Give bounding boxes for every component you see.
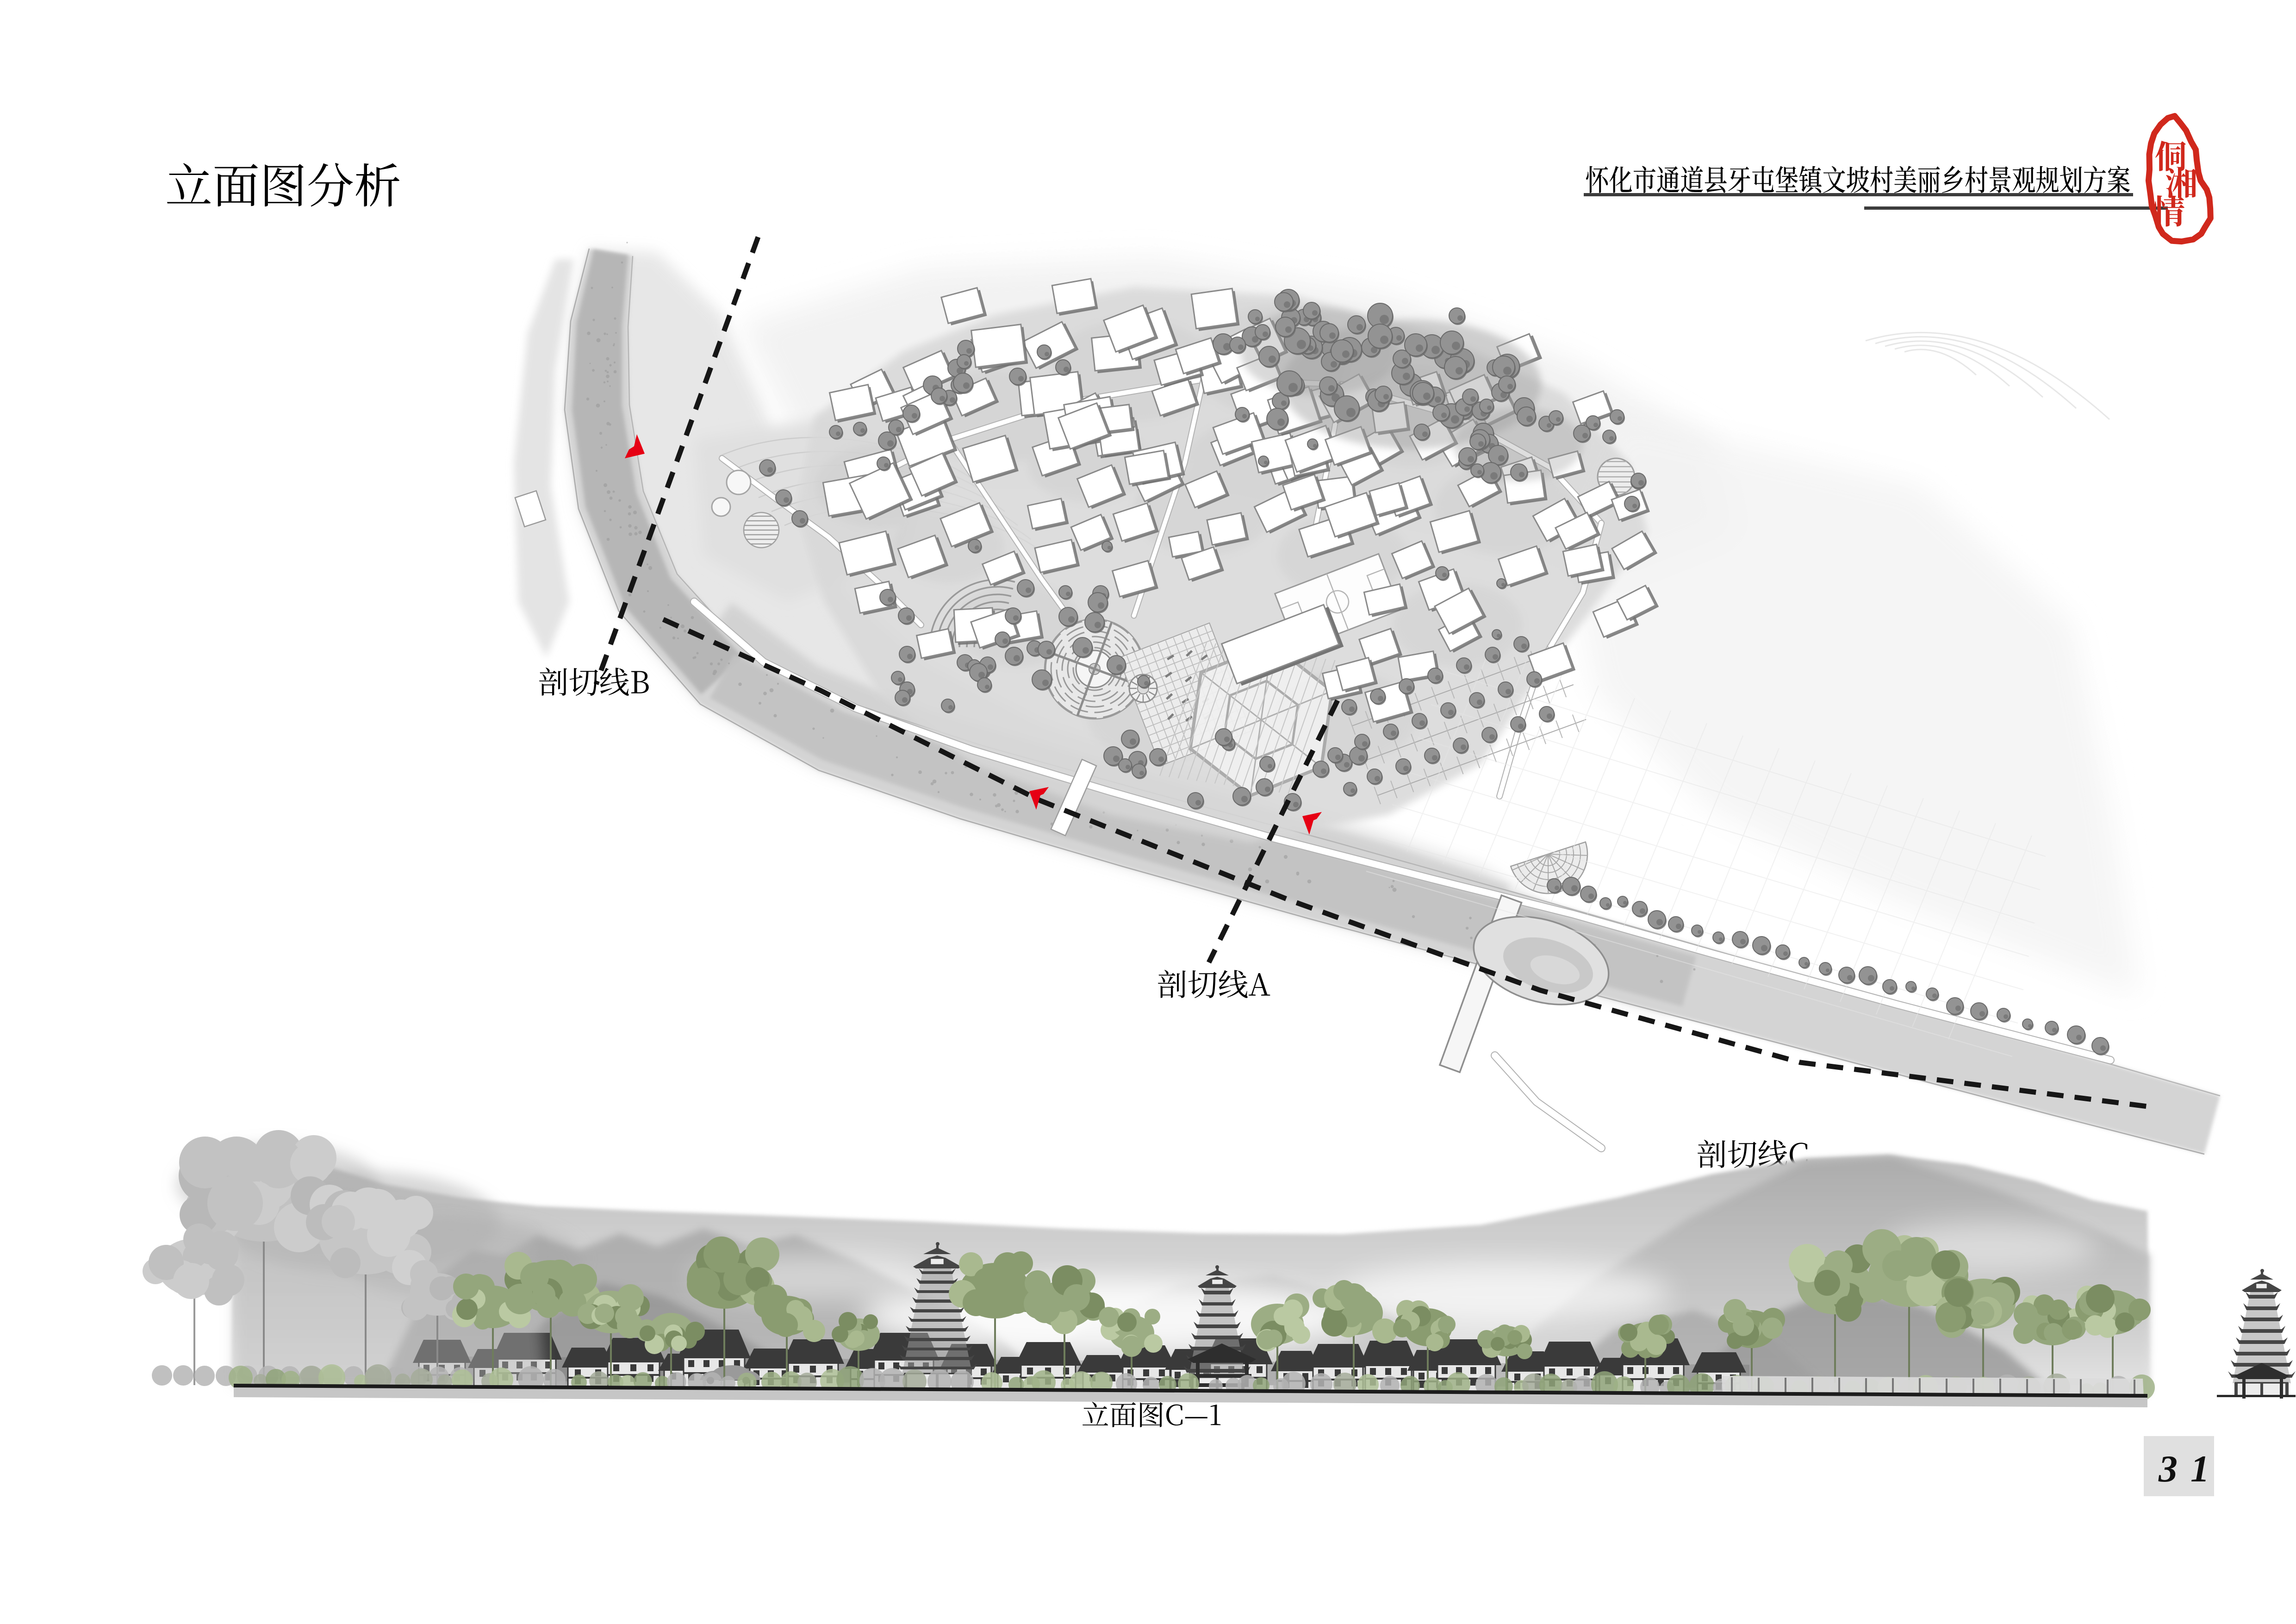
svg-text:31: 31 [2158,1448,2222,1490]
